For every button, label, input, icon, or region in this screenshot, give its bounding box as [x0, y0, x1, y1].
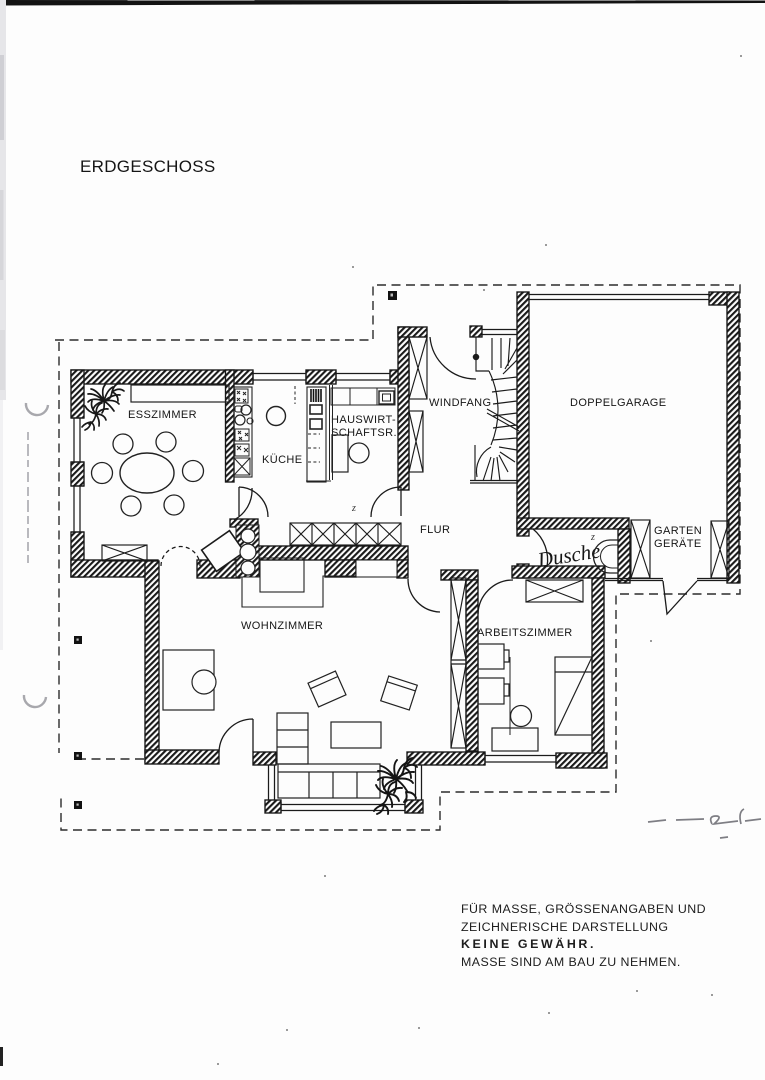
svg-text:GARTEN: GARTEN — [654, 525, 702, 537]
svg-text:ERDGESCHOSS: ERDGESCHOSS — [80, 157, 216, 176]
svg-text:DOPPELGARAGE: DOPPELGARAGE — [570, 397, 667, 409]
svg-text:GERÄTE: GERÄTE — [654, 538, 702, 550]
svg-text:HAUSWIRT-: HAUSWIRT- — [331, 414, 396, 426]
svg-text:FLUR: FLUR — [420, 524, 450, 536]
svg-text:SCHAFTSR.: SCHAFTSR. — [331, 427, 397, 439]
svg-text:z: z — [351, 503, 356, 514]
svg-text:ESSZIMMER: ESSZIMMER — [128, 409, 197, 421]
svg-text:KÜCHE: KÜCHE — [262, 454, 303, 466]
svg-text:ARBEITSZIMMER: ARBEITSZIMMER — [477, 627, 573, 639]
svg-text:WOHNZIMMER: WOHNZIMMER — [241, 620, 323, 632]
svg-text:z: z — [590, 532, 595, 543]
svg-text:WINDFANG: WINDFANG — [429, 397, 491, 409]
